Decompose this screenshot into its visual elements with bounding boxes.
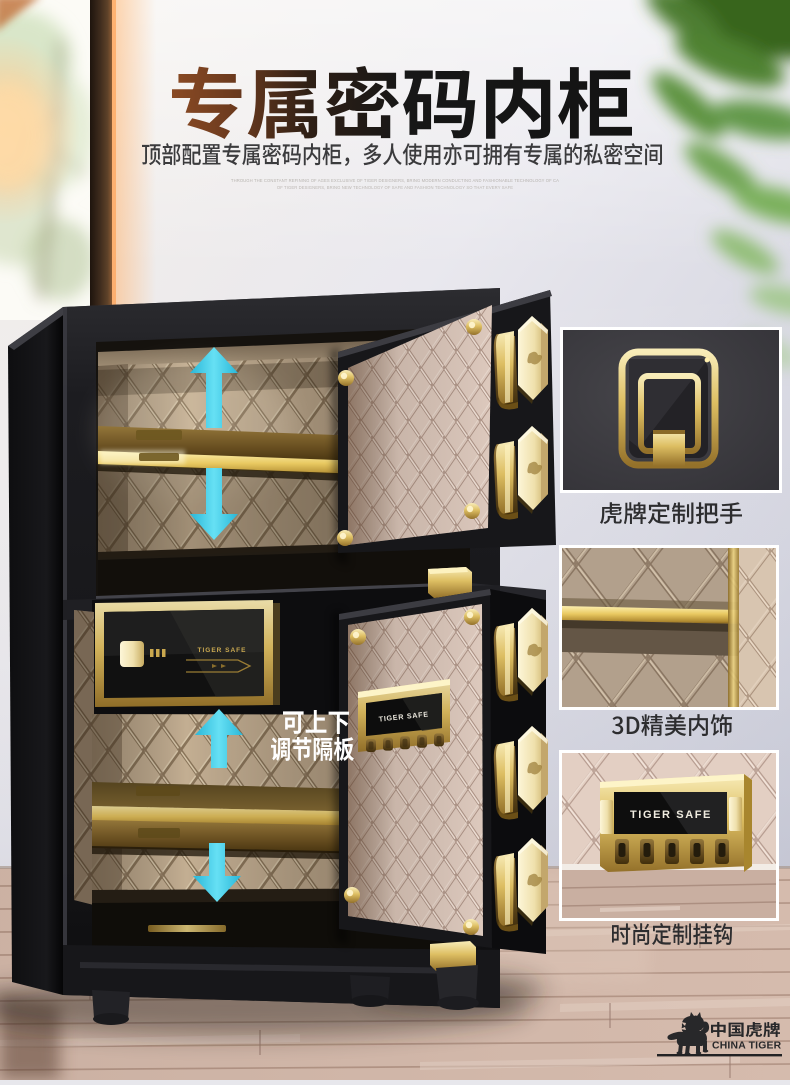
svg-text:TIGER SAFE: TIGER SAFE	[197, 647, 246, 654]
svg-text:CHINA TIGER: CHINA TIGER	[712, 1041, 782, 1052]
svg-text:TIGER SAFE: TIGER SAFE	[630, 809, 712, 821]
svg-text:OF TIGER DESIGNERS, BRING NEW: OF TIGER DESIGNERS, BRING NEW TECHNOLOGY…	[277, 185, 513, 190]
svg-text:THROUGH THE CONSTANT REFINING: THROUGH THE CONSTANT REFINING OF AGES EX…	[231, 178, 559, 183]
